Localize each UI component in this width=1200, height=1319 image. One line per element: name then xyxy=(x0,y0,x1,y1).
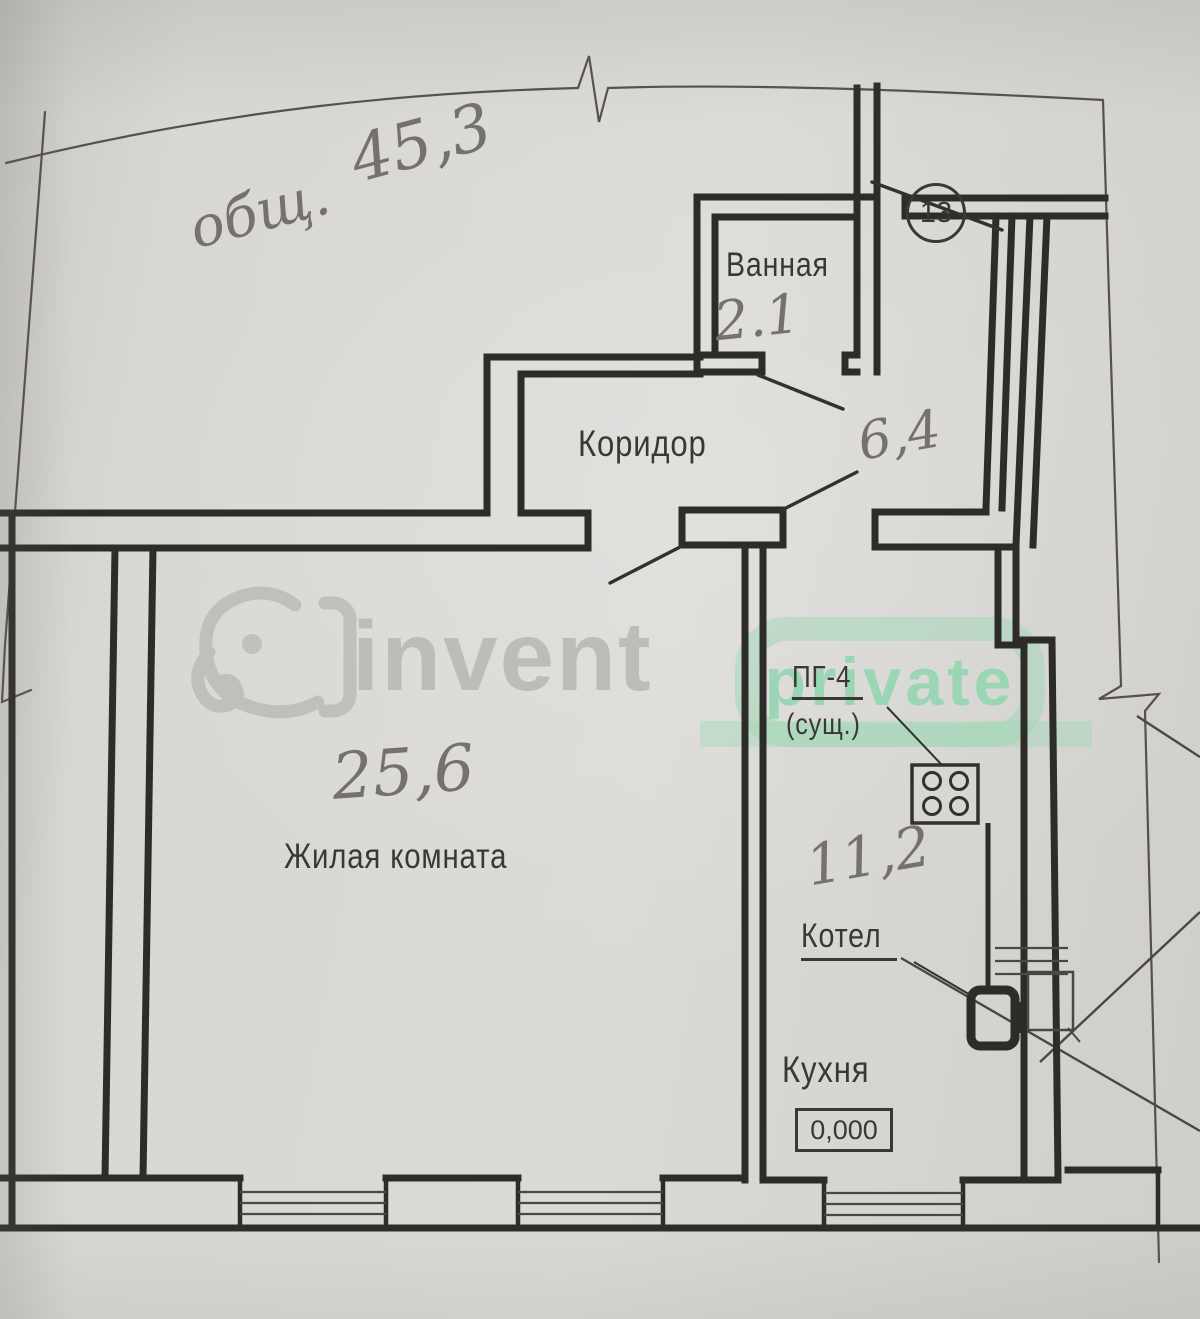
corridor-label: Коридор xyxy=(578,423,731,465)
elevation-mark-box: 0,000 xyxy=(795,1108,893,1152)
stove-note-label: (сущ.) xyxy=(786,708,875,742)
door-swings xyxy=(610,182,1002,583)
window-symbols xyxy=(240,948,1068,1215)
bathroom-label: Ванная xyxy=(726,246,848,285)
boiler-label: Котел xyxy=(801,917,897,961)
elevation-mark-value: 0,000 xyxy=(810,1115,878,1146)
floor-plan-photo: invent private xyxy=(0,0,1200,1319)
bathroom-area-note: 2.1 xyxy=(711,282,803,354)
living-room-label: Жилая комната xyxy=(284,837,550,877)
page-break-lines xyxy=(2,56,1159,1262)
wall-lines xyxy=(0,86,1200,1228)
living-room-area-note: 25,6 xyxy=(330,731,477,815)
stove-label: ПГ-4 xyxy=(792,659,863,700)
kitchen-label: Кухня xyxy=(782,1049,886,1091)
gas-stove-icon xyxy=(887,707,978,823)
door-number-badge: 13 xyxy=(906,183,966,243)
floorplan-drawing xyxy=(0,0,1200,1319)
